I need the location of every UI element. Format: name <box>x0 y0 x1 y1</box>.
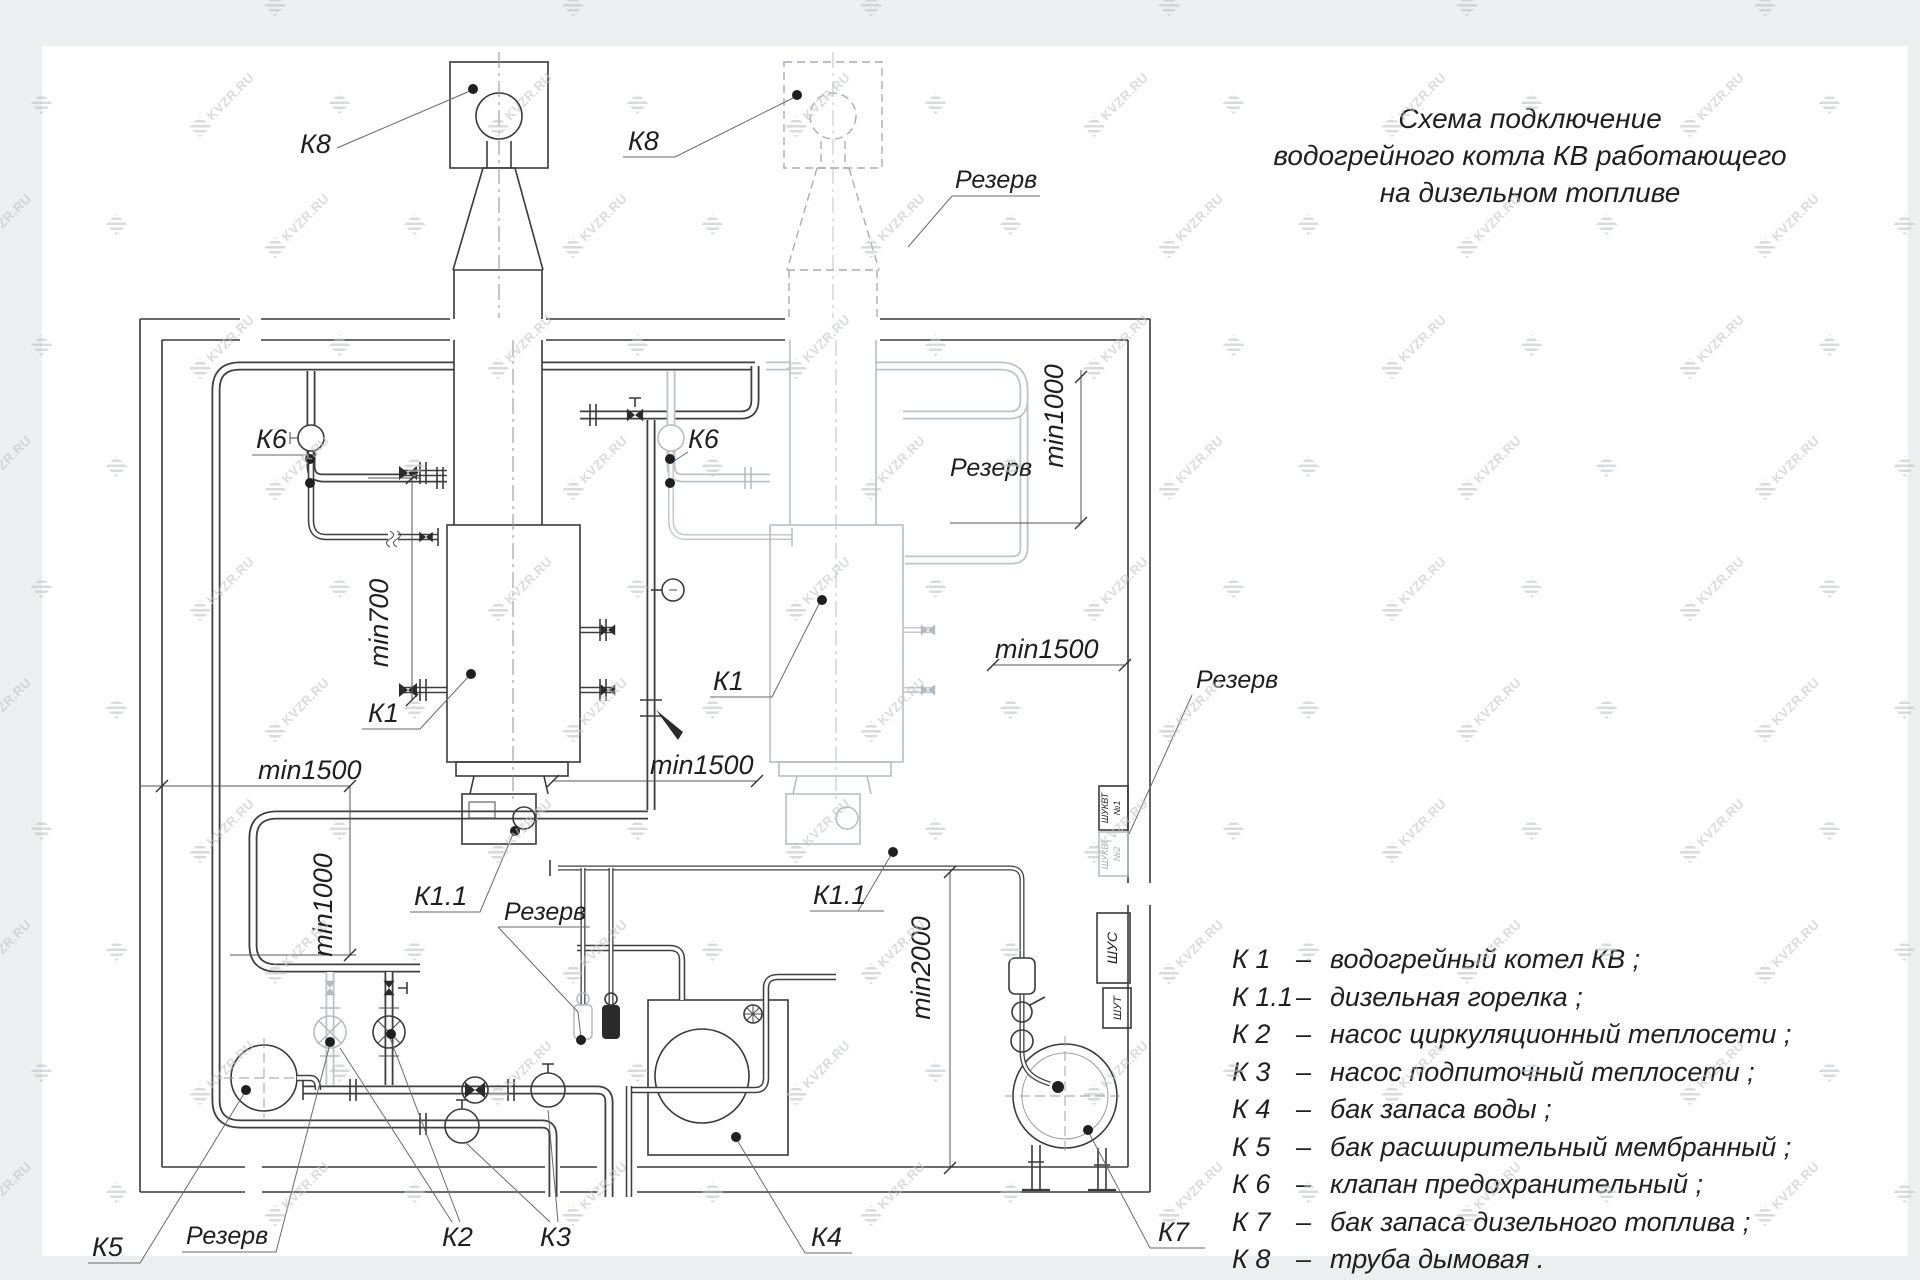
cabinet-shukvt-1-num: №1 <box>1112 801 1122 816</box>
legend-item: К 4–бак запаса воды ; <box>1232 1091 1791 1129</box>
legend-desc: насос циркуляционный теплосети ; <box>1330 1016 1791 1054</box>
label-k2: К2 <box>442 1222 473 1252</box>
legend-desc: насос подпиточный теплосети ; <box>1330 1054 1755 1092</box>
legend-desc: водогрейный котел КВ ; <box>1330 941 1640 979</box>
cabinet-shukvt-1-label: ШУКВТ <box>1100 791 1110 823</box>
label-k1-1: К1 <box>368 698 399 728</box>
label-k1-2: К1 <box>713 666 744 696</box>
legend-desc: дизельная горелка ; <box>1330 979 1583 1017</box>
cabinet-shukvt-2-reserve: ШУКВТ №2 <box>1099 832 1128 876</box>
label-rezerv-cabinet: Резерв <box>1196 666 1278 694</box>
label-k8-2: К8 <box>628 126 659 156</box>
legend-desc: бак расширительный мембранный ; <box>1330 1129 1791 1167</box>
legend-key: К 4 <box>1232 1091 1296 1129</box>
label-rezerv-pump: Резерв <box>186 1222 268 1250</box>
legend-desc: бак запаса воды ; <box>1330 1091 1552 1129</box>
legend-dash: – <box>1296 941 1330 979</box>
legend-key: К 1 <box>1232 941 1296 979</box>
legend-item: К 7–бак запаса дизельного топлива ; <box>1232 1204 1791 1242</box>
downcomer-valve <box>640 700 683 740</box>
fuel-filter <box>1009 958 1045 1052</box>
legend: К 1–водогрейный котел КВ ; К 1.1–дизельн… <box>1232 941 1791 1279</box>
cabinet-shus: ШУС <box>1097 913 1130 983</box>
label-min1500-right: min1500 <box>995 634 1099 664</box>
label-k3: К3 <box>540 1222 571 1252</box>
legend-key: К 3 <box>1232 1054 1296 1092</box>
legend-key: К 6 <box>1232 1166 1296 1204</box>
fuel-line <box>550 860 1050 1084</box>
title-line-1: Схема подключение <box>1168 100 1892 137</box>
label-min1500-mid: min1500 <box>650 750 754 780</box>
legend-dash: – <box>1296 1091 1330 1129</box>
legend-dash: – <box>1296 1166 1330 1204</box>
legend-key: К 5 <box>1232 1129 1296 1167</box>
title-line-2: водогрейного котла КВ работающего <box>1168 137 1892 174</box>
label-k6-2: К6 <box>688 424 720 454</box>
legend-dash: – <box>1296 1204 1330 1242</box>
legend-desc: труба дымовая . <box>1330 1241 1544 1279</box>
legend-item: К 3–насос подпиточный теплосети ; <box>1232 1054 1791 1092</box>
legend-dash: – <box>1296 1129 1330 1167</box>
legend-item: К 8–труба дымовая . <box>1232 1241 1791 1279</box>
cabinet-shus-label: ШУС <box>1104 931 1120 964</box>
cabinet-shut-label: ШУТ <box>1112 995 1124 1020</box>
legend-dash: – <box>1296 1241 1330 1279</box>
legend-key: К 7 <box>1232 1204 1296 1242</box>
legend-item: К 5–бак расширительный мембранный ; <box>1232 1129 1791 1167</box>
legend-dash: – <box>1296 979 1330 1017</box>
legend-desc: клапан предохранительный ; <box>1330 1166 1703 1204</box>
safety-valve-k6-2-reserve <box>658 425 792 546</box>
legend-dash: – <box>1296 1016 1330 1054</box>
label-k4: К4 <box>811 1222 842 1252</box>
label-k7: К7 <box>1158 1217 1190 1247</box>
cabinet-shukvt-2-label: ШУКВТ <box>1100 837 1110 869</box>
label-min1500-left: min1500 <box>258 755 362 785</box>
cabinet-shukvt-1: ШУКВТ №1 <box>1099 786 1128 830</box>
cabinet-shut: ШУТ <box>1103 988 1131 1028</box>
legend-item: К 1–водогрейный котел КВ ; <box>1232 941 1791 979</box>
legend-key: К 1.1 <box>1232 979 1296 1017</box>
label-k8-1: К8 <box>300 129 331 159</box>
label-k5: К5 <box>92 1232 124 1262</box>
drawing-title: Схема подключение водогрейного котла КВ … <box>1168 100 1892 211</box>
legend-item: К 2–насос циркуляционный теплосети ; <box>1232 1016 1791 1054</box>
label-min700: min700 <box>364 579 394 668</box>
legend-dash: – <box>1296 1054 1330 1092</box>
label-min1000-left: min1000 <box>308 853 338 957</box>
thermometer <box>651 579 684 601</box>
legend-desc: бак запаса дизельного топлива ; <box>1330 1204 1750 1242</box>
legend-key: К 8 <box>1232 1241 1296 1279</box>
label-k11-2: К1.1 <box>813 880 866 910</box>
legend-item: К 6–клапан предохранительный ; <box>1232 1166 1791 1204</box>
label-k11-1: К1.1 <box>414 881 467 911</box>
label-min2000: min2000 <box>906 916 936 1020</box>
legend-key: К 2 <box>1232 1016 1296 1054</box>
label-rezerv-boiler: Резерв <box>950 454 1032 482</box>
label-k6-1: К6 <box>256 424 288 454</box>
label-rezerv-fuelunit: Резерв <box>504 898 586 926</box>
label-min1000-right: min1000 <box>1039 364 1069 468</box>
legend-item: К 1.1–дизельная горелка ; <box>1232 979 1791 1017</box>
cabinet-shukvt-2-num: №2 <box>1112 847 1122 862</box>
title-line-3: на дизельном топливе <box>1168 174 1892 211</box>
drawing-page: ШУКВТ №1 ШУКВТ №2 ШУС ШУТ <box>0 0 1920 1280</box>
label-rezerv-chimney: Резерв <box>955 166 1037 194</box>
